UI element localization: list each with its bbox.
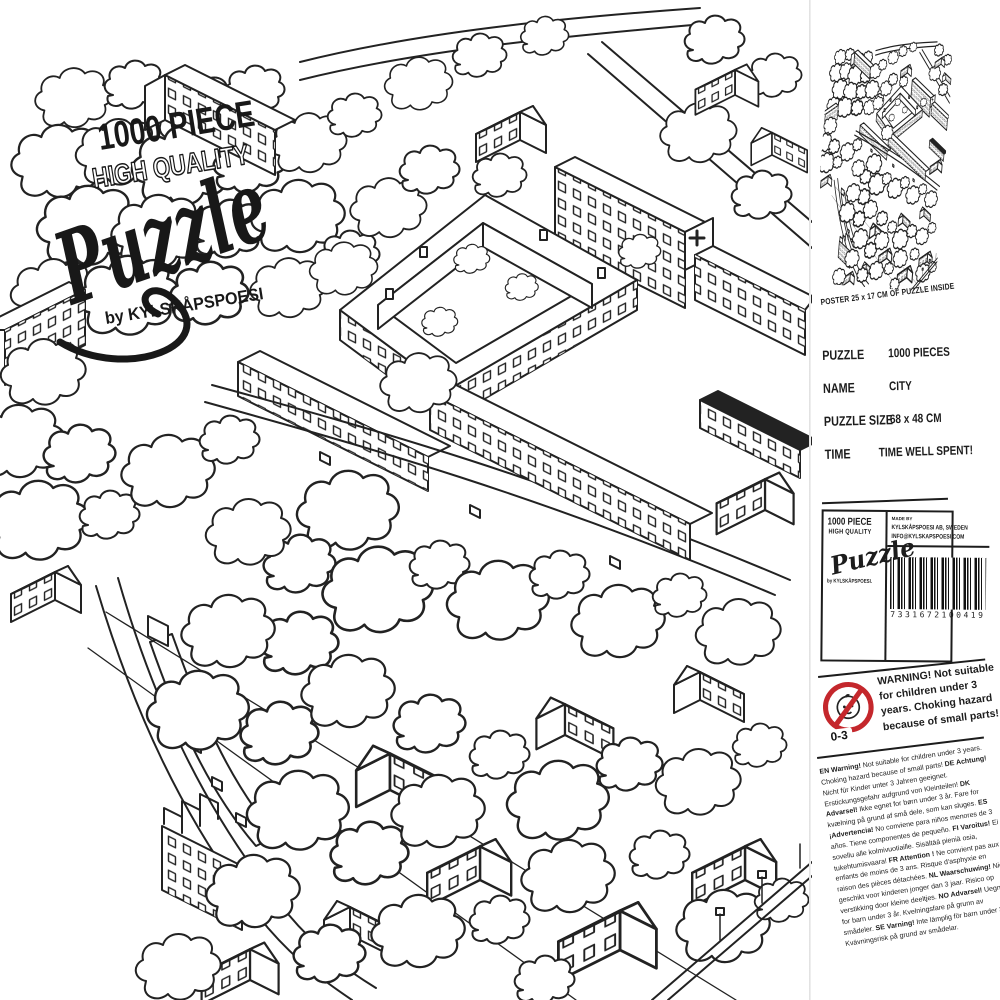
box-front-face: 1000 PIECE HIGH QUALITY Puzzle by KYLSKÅ… <box>0 0 812 1000</box>
spec-value: CITY <box>889 379 912 394</box>
spec-list: PUZZLE 1000 PIECES NAME CITY PUZZLE SIZE… <box>822 343 997 479</box>
spec-value: TIME WELL SPENT! <box>879 443 974 459</box>
warning-text: WARNING! Not suitable for children under… <box>877 660 1000 735</box>
spec-row-name: NAME CITY <box>823 376 995 395</box>
spec-label: TIME <box>825 446 851 462</box>
maker-email: INFO@KYLSKAPSPOESI.COM <box>891 532 964 542</box>
spec-row-puzzle: PUZZLE 1000 PIECES <box>822 343 994 362</box>
spec-label: PUZZLE <box>822 347 864 363</box>
poster-mini-city <box>811 32 954 293</box>
divider <box>822 498 948 504</box>
city-illustration <box>0 8 812 1000</box>
age-warning-icon: 0-3 <box>818 675 880 747</box>
brand-mini-logo: 1000 PIECE HIGH QUALITY Puzzle by KYLSKÅ… <box>822 511 887 660</box>
multilanguage-warning: EN Warning! Not suitable for children un… <box>819 743 1000 951</box>
age-range-label: 0-3 <box>830 728 849 744</box>
spec-value: 1000 PIECES <box>888 345 950 361</box>
city-line-art: 1000 PIECE HIGH QUALITY Puzzle by KYLSKÅ… <box>0 0 812 1000</box>
puzzle-box-product-image: 1000 PIECE HIGH QUALITY Puzzle by KYLSKÅ… <box>0 0 1000 1000</box>
spec-row-size: PUZZLE SIZE 68 x 48 CM <box>824 409 996 428</box>
barcode-block: 1000 PIECE HIGH QUALITY Puzzle by KYLSKÅ… <box>820 509 953 662</box>
barcode-digits: 7331672100419 <box>887 610 989 620</box>
spec-label: NAME <box>823 380 855 396</box>
poster-thumbnail <box>811 32 954 293</box>
box-side-panel: POSTER 25 x 17 CM OF PUZZLE INSIDE PUZZL… <box>812 0 1000 1000</box>
barcode-icon <box>890 557 987 610</box>
spec-row-time: TIME TIME WELL SPENT! <box>825 442 997 461</box>
spec-value: 68 x 48 CM <box>890 411 942 426</box>
box-fold-edge <box>809 0 811 1000</box>
spec-label: PUZZLE SIZE <box>824 412 893 429</box>
